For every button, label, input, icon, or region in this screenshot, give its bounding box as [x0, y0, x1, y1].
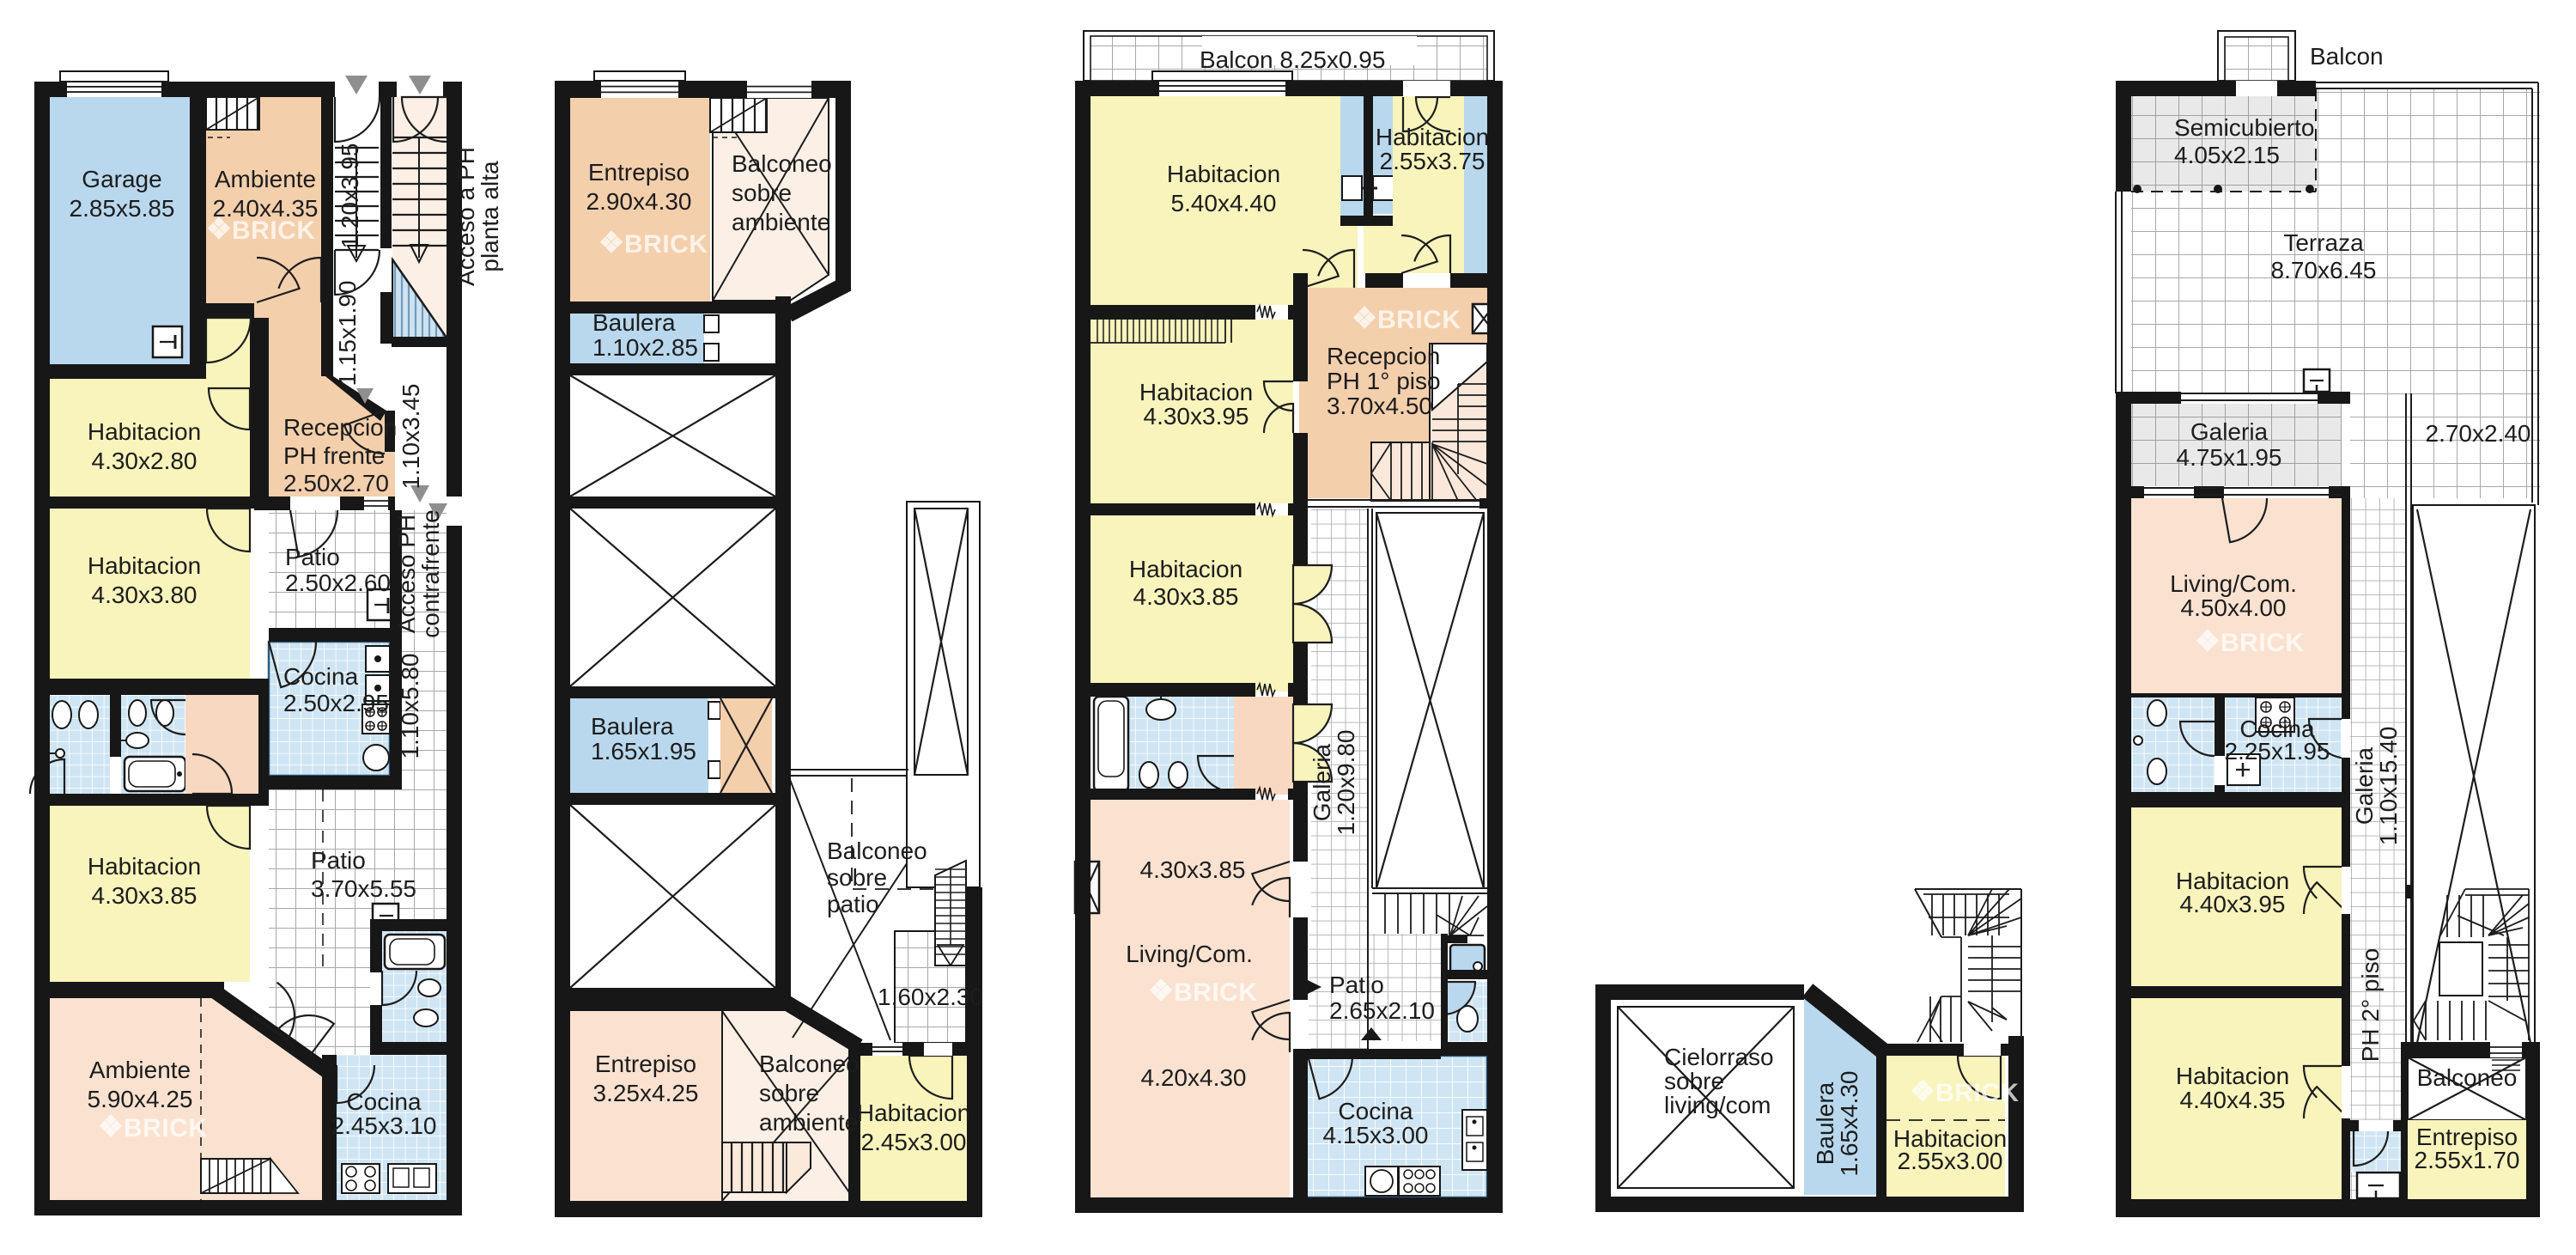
svg-text:Balconeo: Balconeo	[2417, 1064, 2518, 1091]
svg-text:5.90x4.25: 5.90x4.25	[88, 1086, 193, 1112]
svg-text:BRICK: BRICK	[2221, 629, 2305, 657]
svg-text:Garage: Garage	[82, 166, 161, 192]
svg-text:Acceso PH: Acceso PH	[393, 515, 420, 634]
svg-text:Habitacion: Habitacion	[88, 853, 201, 880]
svg-text:2.55x1.70: 2.55x1.70	[2415, 1147, 2520, 1173]
svg-text:Balcon 8.25x0.95: Balcon 8.25x0.95	[1200, 46, 1385, 73]
svg-text:5.40x4.40: 5.40x4.40	[1171, 190, 1277, 216]
svg-text:1.10x2.85: 1.10x2.85	[592, 334, 698, 361]
svg-text:4.30x3.80: 4.30x3.80	[92, 582, 197, 608]
svg-text:Terraza: Terraza	[2283, 229, 2364, 256]
svg-text:Galeria: Galeria	[2190, 418, 2269, 445]
svg-text:4.30x3.95: 4.30x3.95	[1144, 403, 1249, 430]
svg-text:Galeria: Galeria	[2351, 746, 2378, 825]
svg-text:2.85x5.85: 2.85x5.85	[70, 195, 175, 222]
svg-text:contrafrente: contrafrente	[417, 509, 444, 637]
svg-text:2.70x2.40: 2.70x2.40	[2426, 420, 2531, 447]
svg-text:Habitacion: Habitacion	[88, 552, 201, 579]
svg-text:4.40x4.35: 4.40x4.35	[2180, 1087, 2286, 1113]
svg-text:1.20x9.80: 1.20x9.80	[1333, 730, 1359, 836]
svg-text:Ambiente: Ambiente	[89, 1057, 191, 1083]
svg-text:Balconeo: Balconeo	[827, 838, 927, 864]
svg-text:2.50x2.95: 2.50x2.95	[283, 690, 389, 716]
svg-text:PH frente: PH frente	[283, 442, 385, 469]
svg-text:PH 1° piso: PH 1° piso	[1327, 368, 1441, 394]
svg-text:Habitacion: Habitacion	[1376, 124, 1489, 150]
svg-text:Cocina: Cocina	[1338, 1098, 1413, 1124]
svg-text:2.55x3.00: 2.55x3.00	[1898, 1148, 2003, 1174]
svg-text:sobre: sobre	[759, 1080, 819, 1106]
svg-text:2.55x3.75: 2.55x3.75	[1380, 148, 1485, 174]
svg-text:1.10x15.40: 1.10x15.40	[2375, 727, 2402, 846]
svg-text:Habitacion: Habitacion	[1129, 556, 1242, 582]
svg-text:ambiente: ambiente	[732, 209, 830, 235]
svg-text:2.45x3.00: 2.45x3.00	[861, 1129, 967, 1155]
svg-text:Recepcion: Recepcion	[1327, 343, 1440, 369]
svg-text:4.40x3.95: 4.40x3.95	[2180, 891, 2286, 917]
svg-text:Entrepiso: Entrepiso	[588, 159, 690, 186]
svg-text:2.65x2.10: 2.65x2.10	[1329, 997, 1435, 1024]
svg-text:Balcon: Balcon	[2310, 43, 2384, 70]
svg-text:1.10x5.80: 1.10x5.80	[397, 654, 423, 759]
svg-text:Habitacion: Habitacion	[2176, 1063, 2289, 1089]
svg-text:1.10x3.45: 1.10x3.45	[398, 384, 424, 490]
svg-text:planta alta: planta alta	[477, 161, 503, 272]
svg-text:Cocina: Cocina	[346, 1088, 422, 1115]
svg-text:Ambiente: Ambiente	[215, 166, 316, 192]
svg-text:3.70x5.55: 3.70x5.55	[311, 875, 416, 902]
svg-text:4.75x1.95: 4.75x1.95	[2177, 444, 2282, 471]
svg-text:Patio: Patio	[1329, 972, 1384, 998]
svg-text:sobre: sobre	[827, 864, 887, 891]
svg-text:Cielorraso: Cielorraso	[1664, 1044, 1774, 1070]
svg-text:4.30x2.80: 4.30x2.80	[92, 448, 197, 474]
svg-text:BRICK: BRICK	[1174, 978, 1258, 1007]
svg-text:patio: patio	[827, 891, 879, 917]
svg-text:1.15x1.90: 1.15x1.90	[334, 281, 361, 387]
svg-text:4.30x3.85: 4.30x3.85	[1133, 583, 1239, 610]
svg-text:2.50x2.70: 2.50x2.70	[283, 470, 389, 497]
svg-text:Recepcion: Recepcion	[283, 414, 397, 441]
svg-text:Habitacion: Habitacion	[1139, 379, 1253, 405]
svg-text:8.70x6.45: 8.70x6.45	[2271, 257, 2377, 283]
svg-text:BRICK: BRICK	[232, 216, 316, 245]
svg-text:❖: ❖	[1352, 302, 1377, 335]
svg-text:2.50x2.60: 2.50x2.60	[285, 570, 391, 596]
svg-text:Baulera: Baulera	[592, 309, 676, 336]
svg-text:Baulera: Baulera	[1812, 1081, 1838, 1165]
svg-text:BRICK: BRICK	[1935, 1079, 2020, 1107]
svg-text:sobre: sobre	[732, 180, 792, 206]
svg-text:BRICK: BRICK	[624, 230, 708, 259]
svg-text:Semicubierto: Semicubierto	[2174, 114, 2314, 141]
svg-text:Balconeo: Balconeo	[759, 1051, 860, 1077]
svg-text:Balconeo: Balconeo	[732, 150, 832, 177]
svg-text:3.70x4.50: 3.70x4.50	[1327, 393, 1432, 419]
svg-text:Habitacion: Habitacion	[1167, 161, 1280, 187]
svg-text:Living/Com.: Living/Com.	[2170, 570, 2297, 597]
svg-text:Cocina: Cocina	[283, 663, 359, 690]
svg-text:Baulera: Baulera	[591, 713, 674, 740]
svg-text:Patio: Patio	[285, 544, 340, 570]
svg-text:BRICK: BRICK	[124, 1114, 208, 1142]
svg-text:❖: ❖	[206, 213, 232, 246]
svg-text:PH 2° piso: PH 2° piso	[2357, 948, 2384, 1063]
svg-text:sobre: sobre	[1664, 1068, 1724, 1094]
svg-text:Acceso a PH: Acceso a PH	[453, 147, 479, 286]
svg-text:4.20x4.30: 4.20x4.30	[1141, 1064, 1247, 1091]
svg-text:Patio: Patio	[311, 847, 366, 874]
svg-text:Habitacion: Habitacion	[857, 1100, 970, 1126]
svg-text:BRICK: BRICK	[1377, 306, 1461, 334]
svg-text:1.65x4.30: 1.65x4.30	[1836, 1071, 1862, 1177]
svg-text:❖: ❖	[1148, 975, 1174, 1008]
svg-text:4.05x2.15: 4.05x2.15	[2174, 142, 2280, 168]
svg-text:Habitacion: Habitacion	[88, 418, 201, 445]
svg-text:❖: ❖	[1910, 1075, 1935, 1108]
svg-text:4.50x4.00: 4.50x4.00	[2181, 594, 2287, 621]
svg-text:1.60x2.30: 1.60x2.30	[878, 984, 983, 1010]
svg-text:2.90x4.30: 2.90x4.30	[586, 188, 692, 215]
svg-text:2.45x3.10: 2.45x3.10	[331, 1112, 437, 1139]
svg-text:4.15x3.00: 4.15x3.00	[1323, 1122, 1429, 1148]
svg-text:2.25x1.95: 2.25x1.95	[2225, 738, 2330, 765]
svg-text:3.25x4.25: 3.25x4.25	[593, 1080, 699, 1106]
svg-text:1.20x3.95: 1.20x3.95	[337, 143, 363, 249]
svg-text:4.30x3.85: 4.30x3.85	[1140, 856, 1246, 883]
svg-text:❖: ❖	[2195, 625, 2221, 658]
svg-text:❖: ❖	[98, 1111, 124, 1143]
svg-text:ambiente: ambiente	[759, 1109, 858, 1136]
svg-text:❖: ❖	[598, 227, 624, 259]
svg-text:Galeria: Galeria	[1309, 743, 1335, 821]
svg-text:living/com: living/com	[1664, 1092, 1771, 1118]
svg-text:Living/Com.: Living/Com.	[1126, 941, 1253, 967]
svg-text:Entrepiso: Entrepiso	[595, 1051, 696, 1077]
svg-text:4.30x3.85: 4.30x3.85	[92, 882, 197, 909]
svg-text:1.65x1.95: 1.65x1.95	[591, 738, 696, 765]
